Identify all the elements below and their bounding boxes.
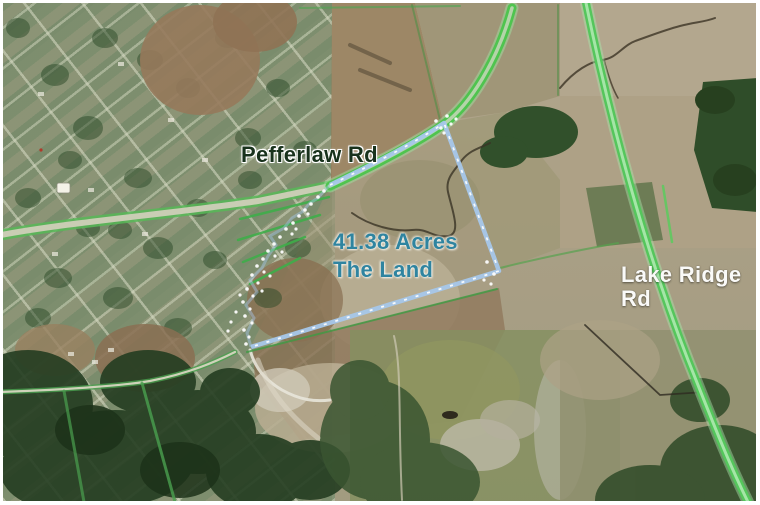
- lake-ridge-line1: Lake Ridge: [621, 263, 741, 287]
- road-label-pefferlaw: Pefferlaw Rd: [241, 142, 378, 168]
- acreage-line1: 41.38 Acres: [333, 228, 458, 256]
- red-speck: [39, 148, 42, 151]
- route-shield-icon: [57, 183, 70, 193]
- road-label-lake-ridge: Lake Ridge Rd: [621, 263, 741, 311]
- listing-photo-frame: Pefferlaw Rd 41.38 Acres The Land Lake R…: [0, 0, 760, 505]
- road-label-pefferlaw-text: Pefferlaw Rd: [241, 142, 378, 167]
- lake-ridge-line2: Rd: [621, 287, 741, 311]
- map-canvas[interactable]: Pefferlaw Rd 41.38 Acres The Land Lake R…: [3, 3, 756, 501]
- parcel-acreage-label: 41.38 Acres The Land: [333, 228, 458, 284]
- acreage-line2: The Land: [333, 256, 458, 284]
